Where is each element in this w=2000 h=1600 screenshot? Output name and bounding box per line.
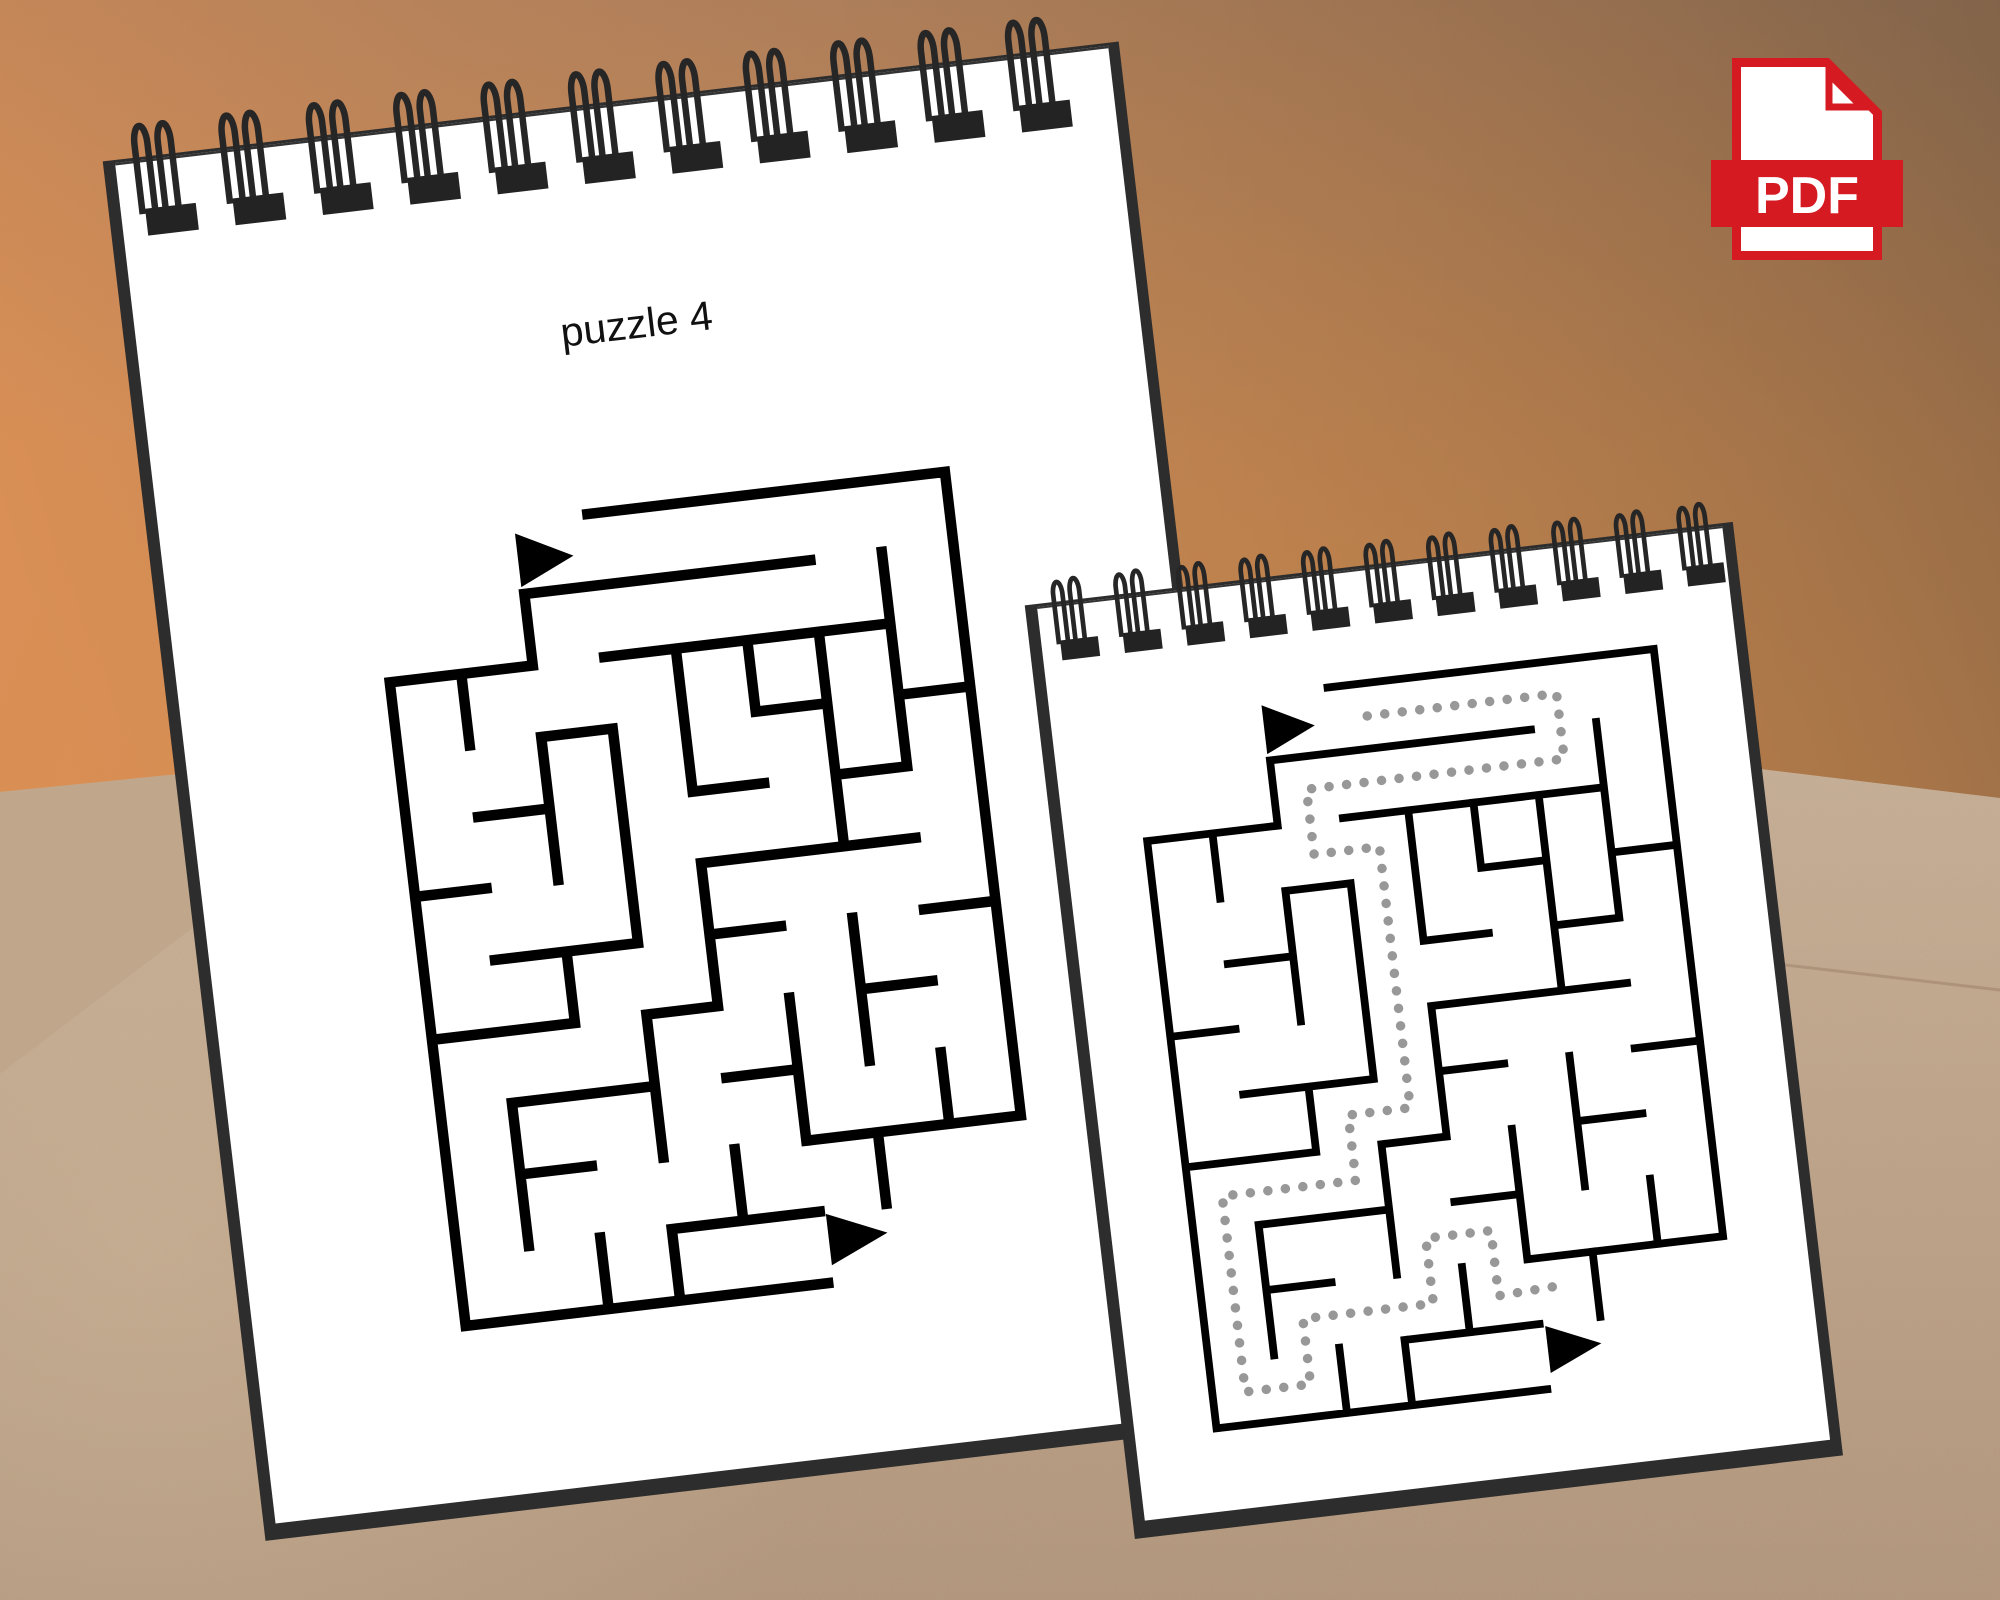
svg-text:PDF: PDF [1755,167,1859,225]
